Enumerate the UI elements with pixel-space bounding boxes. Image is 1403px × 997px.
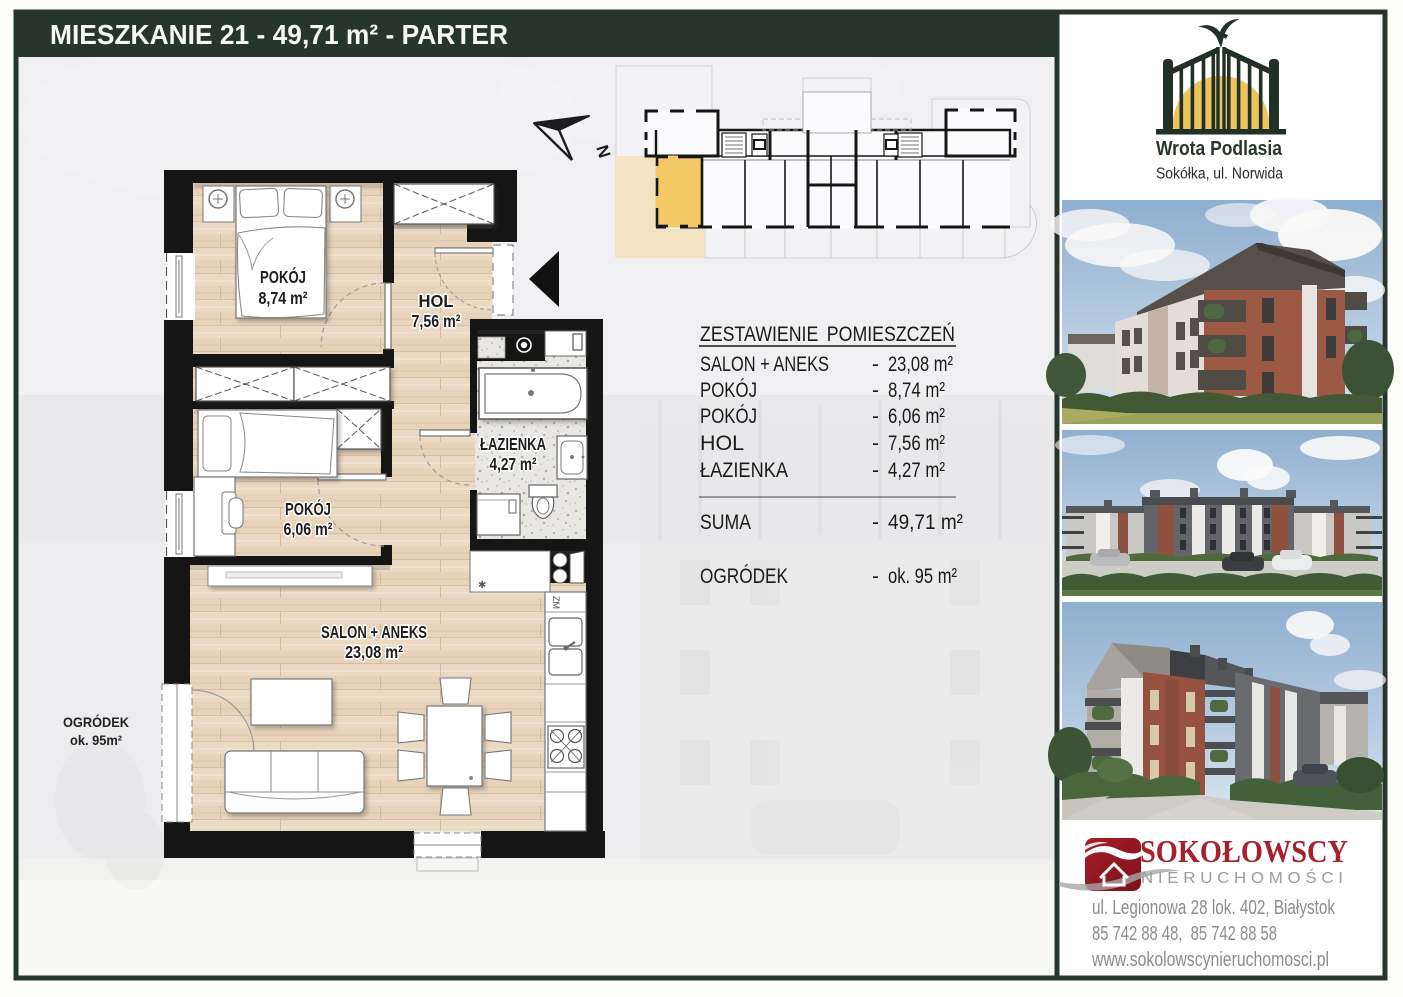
svg-text:ul. Legionowa 28 lok. 402, Bia: ul. Legionowa 28 lok. 402, Białystok bbox=[1092, 897, 1336, 919]
svg-text:7,56 m²: 7,56 m² bbox=[412, 311, 461, 331]
svg-text:7,56 m²: 7,56 m² bbox=[888, 432, 945, 455]
svg-text:ok. 95 m²: ok. 95 m² bbox=[888, 565, 957, 588]
svg-text:HOL: HOL bbox=[700, 432, 744, 455]
svg-text:23,08 m²: 23,08 m² bbox=[888, 353, 953, 376]
svg-text:SUMA: SUMA bbox=[700, 511, 751, 534]
svg-text:8,74 m²: 8,74 m² bbox=[259, 288, 308, 308]
svg-text:Sokółka, ul. Norwida: Sokółka, ul. Norwida bbox=[1156, 166, 1283, 183]
svg-text:SALON + ANEKS: SALON + ANEKS bbox=[700, 353, 829, 376]
svg-text:ok. 95m²: ok. 95m² bbox=[70, 732, 122, 748]
svg-text:49,71 m²: 49,71 m² bbox=[888, 511, 963, 534]
svg-text:MIESZKANIE 21 - 49,71 m² - PAR: MIESZKANIE 21 - 49,71 m² - PARTER bbox=[50, 19, 508, 50]
svg-text:SALON + ANEKS: SALON + ANEKS bbox=[321, 622, 427, 642]
svg-text:-: - bbox=[872, 432, 879, 455]
svg-text:POKÓJ: POKÓJ bbox=[700, 405, 757, 428]
svg-text:POKÓJ: POKÓJ bbox=[700, 379, 757, 402]
svg-text:6,06 m²: 6,06 m² bbox=[284, 519, 333, 539]
svg-text:✱: ✱ bbox=[478, 580, 486, 591]
svg-text:ŁAZIENKA: ŁAZIENKA bbox=[700, 459, 788, 482]
svg-text:SOKOŁOWSCY: SOKOŁOWSCY bbox=[1140, 833, 1348, 869]
svg-text:ZM: ZM bbox=[551, 596, 561, 609]
svg-text:-: - bbox=[872, 379, 879, 402]
svg-text:OGRÓDEK: OGRÓDEK bbox=[63, 713, 129, 730]
svg-text:23,08 m²: 23,08 m² bbox=[345, 642, 403, 662]
svg-text:-: - bbox=[872, 353, 879, 376]
svg-text:8,74 m²: 8,74 m² bbox=[888, 379, 945, 402]
svg-text:Wrota Podlasia: Wrota Podlasia bbox=[1156, 138, 1283, 160]
svg-text:POKÓJ: POKÓJ bbox=[285, 498, 331, 519]
svg-text:85 742 88 48, 85 742 88 58: 85 742 88 48, 85 742 88 58 bbox=[1092, 923, 1277, 945]
svg-text:N I E R U C H O M O Ś C I: N I E R U C H O M O Ś C I bbox=[1141, 868, 1343, 887]
svg-text:-: - bbox=[872, 565, 879, 588]
svg-text:6,06 m²: 6,06 m² bbox=[888, 405, 945, 428]
svg-text:-: - bbox=[872, 511, 879, 534]
svg-text:www.sokolowscynieruchomosci.pl: www.sokolowscynieruchomosci.pl bbox=[1091, 949, 1329, 971]
svg-text:HOL: HOL bbox=[419, 291, 454, 311]
svg-text:-: - bbox=[872, 459, 879, 482]
svg-text:4,27 m²: 4,27 m² bbox=[888, 459, 945, 482]
svg-text:ŁAZIENKA: ŁAZIENKA bbox=[480, 434, 546, 454]
svg-text:OGRÓDEK: OGRÓDEK bbox=[700, 565, 788, 588]
svg-text:ZESTAWIENIE POMIESZCZEŃ: ZESTAWIENIE POMIESZCZEŃ bbox=[700, 323, 955, 346]
svg-text:POKÓJ: POKÓJ bbox=[260, 266, 306, 287]
svg-text:-: - bbox=[872, 405, 879, 428]
svg-text:4,27 m²: 4,27 m² bbox=[490, 454, 537, 474]
